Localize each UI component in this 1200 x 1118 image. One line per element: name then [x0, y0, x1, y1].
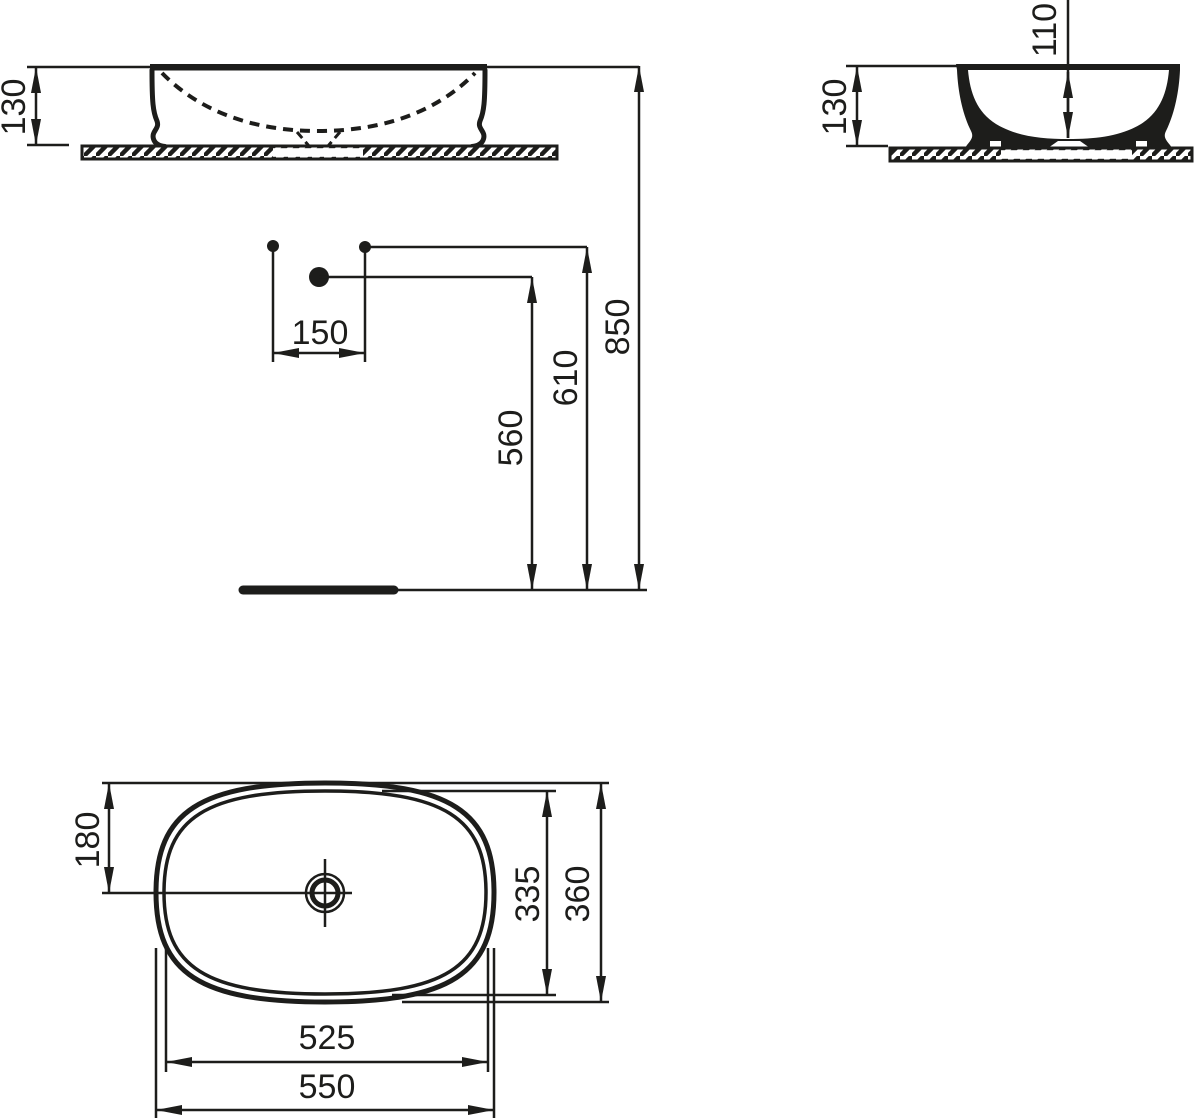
hidden-drain-funnel-left	[297, 132, 309, 146]
dim-label-610: 610	[547, 350, 585, 407]
hidden-inner-bowl-outline	[162, 73, 475, 131]
dim-side-basin-height: 130	[816, 66, 958, 146]
basin-right-wall	[472, 70, 485, 147]
dim-label-130-side: 130	[816, 79, 854, 136]
dim-rim-to-drain: 180	[69, 783, 109, 893]
dim-label-525: 525	[299, 1019, 356, 1057]
dim-label-130-front: 130	[0, 79, 33, 136]
dim-label-180: 180	[69, 812, 107, 869]
dim-rim-height: 850	[599, 66, 639, 590]
countertop-cutout-front	[273, 148, 363, 157]
drawing-sheet: 130 150 560 610 850	[0, 0, 1200, 1118]
technical-drawing: 130 150 560 610 850	[0, 0, 1200, 1118]
top-view: 180 335 360 525 550	[69, 783, 609, 1118]
basin-left-wall	[152, 70, 165, 147]
dim-overall-width: 360	[402, 783, 609, 1002]
dim-tap-hole-spacing: 150	[273, 314, 365, 353]
dim-label-560: 560	[492, 410, 530, 467]
dim-label-150: 150	[292, 314, 349, 352]
front-view: 130	[0, 64, 639, 159]
dim-label-110: 110	[1026, 3, 1064, 57]
dim-inner-length: 525	[166, 948, 488, 1072]
dim-front-basin-height: 130	[0, 67, 69, 145]
side-view: 130 110	[816, 0, 1192, 161]
basin-rim-front	[150, 64, 487, 71]
dim-label-335: 335	[509, 866, 547, 923]
dim-drain-outlet-height: 560	[492, 277, 532, 590]
dim-tap-hole-height: 610	[547, 247, 587, 590]
hidden-drain-funnel-right	[328, 132, 340, 146]
dim-label-360: 360	[559, 866, 597, 923]
dim-label-550: 550	[299, 1068, 356, 1106]
countertop-cutout-side	[1001, 150, 1132, 159]
dim-label-850: 850	[599, 299, 637, 356]
